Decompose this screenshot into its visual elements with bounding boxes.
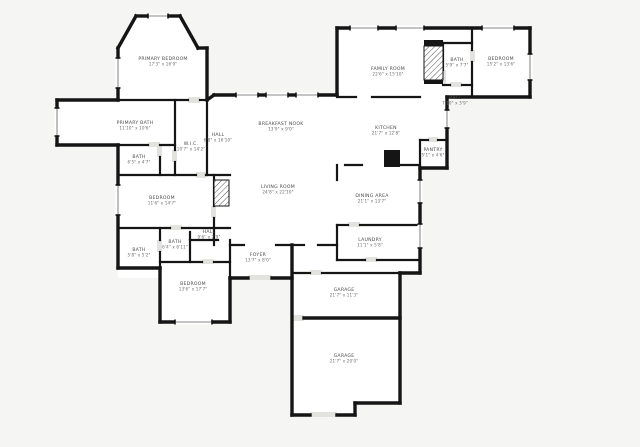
room-label-dining-area: DINING AREA21'1" x 13'7"	[355, 193, 389, 204]
room-label-bedroom-4: BEDROOM13'6" x 17'7"	[179, 281, 208, 292]
svg-text:11'6" x 14'7": 11'6" x 14'7"	[148, 201, 177, 206]
room-label-bedroom-3: BEDROOM11'6" x 14'7"	[148, 195, 177, 206]
svg-text:6'5" x 4'7": 6'5" x 4'7"	[127, 160, 150, 165]
svg-text:10'7" x 14'2": 10'7" x 14'2"	[177, 147, 206, 152]
living-room-fireplace	[214, 180, 229, 206]
svg-text:21'7" x 11'3": 21'7" x 11'3"	[330, 293, 359, 298]
svg-text:9'6" x 2'9": 9'6" x 2'9"	[197, 235, 220, 240]
room-label-living-room: LIVING ROOM24'8" x 22'10"	[261, 184, 295, 195]
svg-text:22'6" x 15'10": 22'6" x 15'10"	[372, 72, 403, 77]
kitchen-island	[384, 150, 400, 167]
svg-text:13'7" x 8'0": 13'7" x 8'0"	[245, 258, 271, 263]
svg-text:21'1" x 13'7": 21'1" x 13'7"	[358, 199, 387, 204]
room-label-garage-1: GARAGE21'7" x 11'3"	[330, 287, 359, 298]
room-label-garage-2: GARAGE21'7" x 20'0"	[330, 353, 359, 364]
room-label-primary-bath: PRIMARY BATH11'10" x 10'6"	[117, 120, 154, 131]
svg-text:15'2" x 13'6": 15'2" x 13'6"	[487, 62, 516, 67]
svg-text:11'1" x 5'8": 11'1" x 5'8"	[357, 243, 383, 248]
svg-text:6'4" x 6'11": 6'4" x 6'11"	[162, 245, 188, 250]
svg-text:5'8" x 5'2": 5'8" x 5'2"	[127, 253, 150, 258]
room-label-bedroom-2: BEDROOM15'2" x 13'6"	[487, 56, 516, 67]
room-label-family-room: FAMILY ROOM22'6" x 15'10"	[371, 66, 405, 77]
svg-text:21'7" x 20'0": 21'7" x 20'0"	[330, 359, 359, 364]
svg-text:5'9" x 7'7": 5'9" x 7'7"	[445, 63, 468, 68]
svg-text:7'10" x 3'9": 7'10" x 3'9"	[442, 101, 468, 106]
svg-text:24'8" x 22'10": 24'8" x 22'10"	[262, 190, 293, 195]
svg-text:11'10" x 10'6": 11'10" x 10'6"	[119, 126, 150, 131]
floor-plan: PRIMARY BEDROOM17'3" x 16'9"PRIMARY BATH…	[0, 0, 640, 447]
svg-text:21'7" x 12'8": 21'7" x 12'8"	[372, 131, 401, 136]
room-label-kitchen: KITCHEN21'7" x 12'8"	[372, 125, 401, 136]
room-label-laundry: LAUNDRY11'1" x 5'8"	[357, 237, 383, 248]
svg-text:13'9" x 9'0": 13'9" x 9'0"	[268, 127, 294, 132]
svg-text:6'8" x 16'10": 6'8" x 16'10"	[204, 138, 233, 143]
svg-text:5'1" x 4'6": 5'1" x 4'6"	[421, 153, 444, 158]
svg-text:17'3" x 16'9": 17'3" x 16'9"	[149, 62, 178, 67]
room-label-pantry: PANTRY5'1" x 4'6"	[421, 147, 444, 158]
svg-text:13'6" x 17'7": 13'6" x 17'7"	[179, 287, 208, 292]
family-room-fireplace	[424, 40, 443, 84]
floor-plan-page: PRIMARY BEDROOM17'3" x 16'9"PRIMARY BATH…	[0, 0, 640, 447]
